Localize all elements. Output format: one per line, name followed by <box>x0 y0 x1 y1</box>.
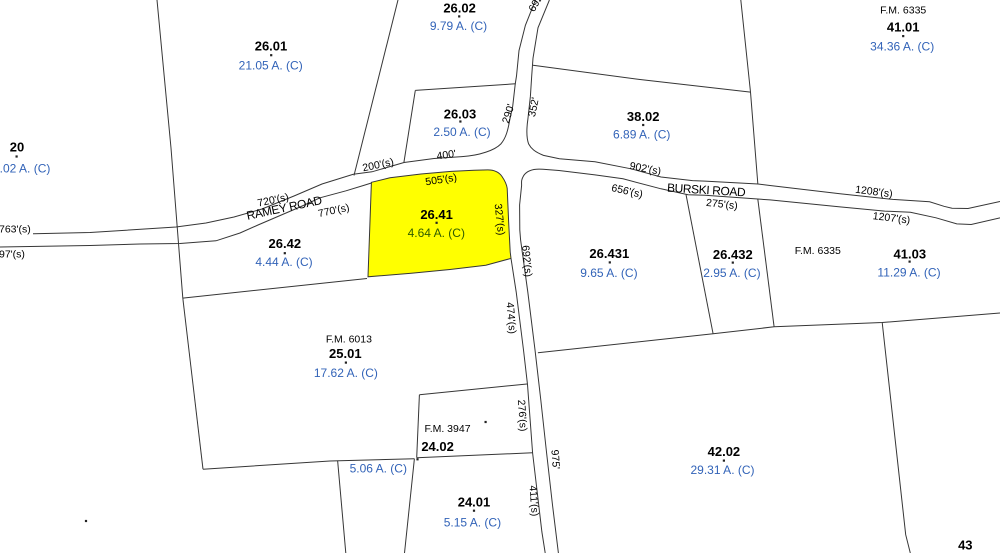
svg-text:975': 975' <box>548 449 561 469</box>
svg-text:5.06 A. (C): 5.06 A. (C) <box>350 462 407 476</box>
svg-text:4.64 A. (C): 4.64 A. (C) <box>408 226 465 240</box>
svg-text:17.62 A. (C): 17.62 A. (C) <box>314 366 378 380</box>
svg-text:26.02: 26.02 <box>443 0 476 15</box>
svg-text:26.432: 26.432 <box>713 247 753 262</box>
svg-text:24.01: 24.01 <box>458 495 491 510</box>
svg-text:26.431: 26.431 <box>589 246 629 261</box>
svg-text:29.31 A. (C): 29.31 A. (C) <box>690 463 754 477</box>
svg-text:F.M. 6013: F.M. 6013 <box>326 333 372 345</box>
svg-text:276'(s): 276'(s) <box>515 399 529 432</box>
svg-text:34.36 A. (C): 34.36 A. (C) <box>870 40 934 54</box>
svg-text:21.05 A. (C): 21.05 A. (C) <box>239 58 303 72</box>
svg-text:24.02: 24.02 <box>421 439 454 454</box>
svg-text:11.29 A. (C): 11.29 A. (C) <box>877 266 940 280</box>
svg-text:F.M. 3947: F.M. 3947 <box>424 423 470 435</box>
svg-text:43: 43 <box>958 538 972 553</box>
svg-text:26.01: 26.01 <box>255 38 288 53</box>
svg-text:411'(s): 411'(s) <box>527 485 541 517</box>
svg-text:25.01: 25.01 <box>329 346 362 361</box>
svg-text:26.41: 26.41 <box>420 207 453 222</box>
svg-text:F.M. 6335: F.M. 6335 <box>795 245 841 257</box>
svg-text:20: 20 <box>10 140 24 155</box>
svg-text:4.44 A. (C): 4.44 A. (C) <box>255 255 312 269</box>
svg-text:2.50 A. (C): 2.50 A. (C) <box>433 125 490 139</box>
svg-text:9.79 A. (C): 9.79 A. (C) <box>430 19 487 33</box>
svg-text:5.15 A. (C): 5.15 A. (C) <box>444 516 501 530</box>
svg-text:41.01: 41.01 <box>887 19 920 34</box>
svg-text:26.42: 26.42 <box>269 236 302 251</box>
svg-text:763'(s): 763'(s) <box>0 224 31 236</box>
svg-text:42.02: 42.02 <box>708 444 741 459</box>
svg-text:F.M. 6335: F.M. 6335 <box>880 5 926 17</box>
svg-text:5.02 A. (C): 5.02 A. (C) <box>0 161 50 175</box>
svg-text:41.03: 41.03 <box>894 247 927 262</box>
svg-text:9.65 A. (C): 9.65 A. (C) <box>580 266 637 280</box>
svg-text:6.89 A. (C): 6.89 A. (C) <box>613 127 670 141</box>
svg-text:2.95 A. (C): 2.95 A. (C) <box>703 266 760 280</box>
svg-text:38.02: 38.02 <box>627 109 660 124</box>
svg-text:26.03: 26.03 <box>444 107 477 122</box>
svg-text:97'(s): 97'(s) <box>0 248 25 260</box>
